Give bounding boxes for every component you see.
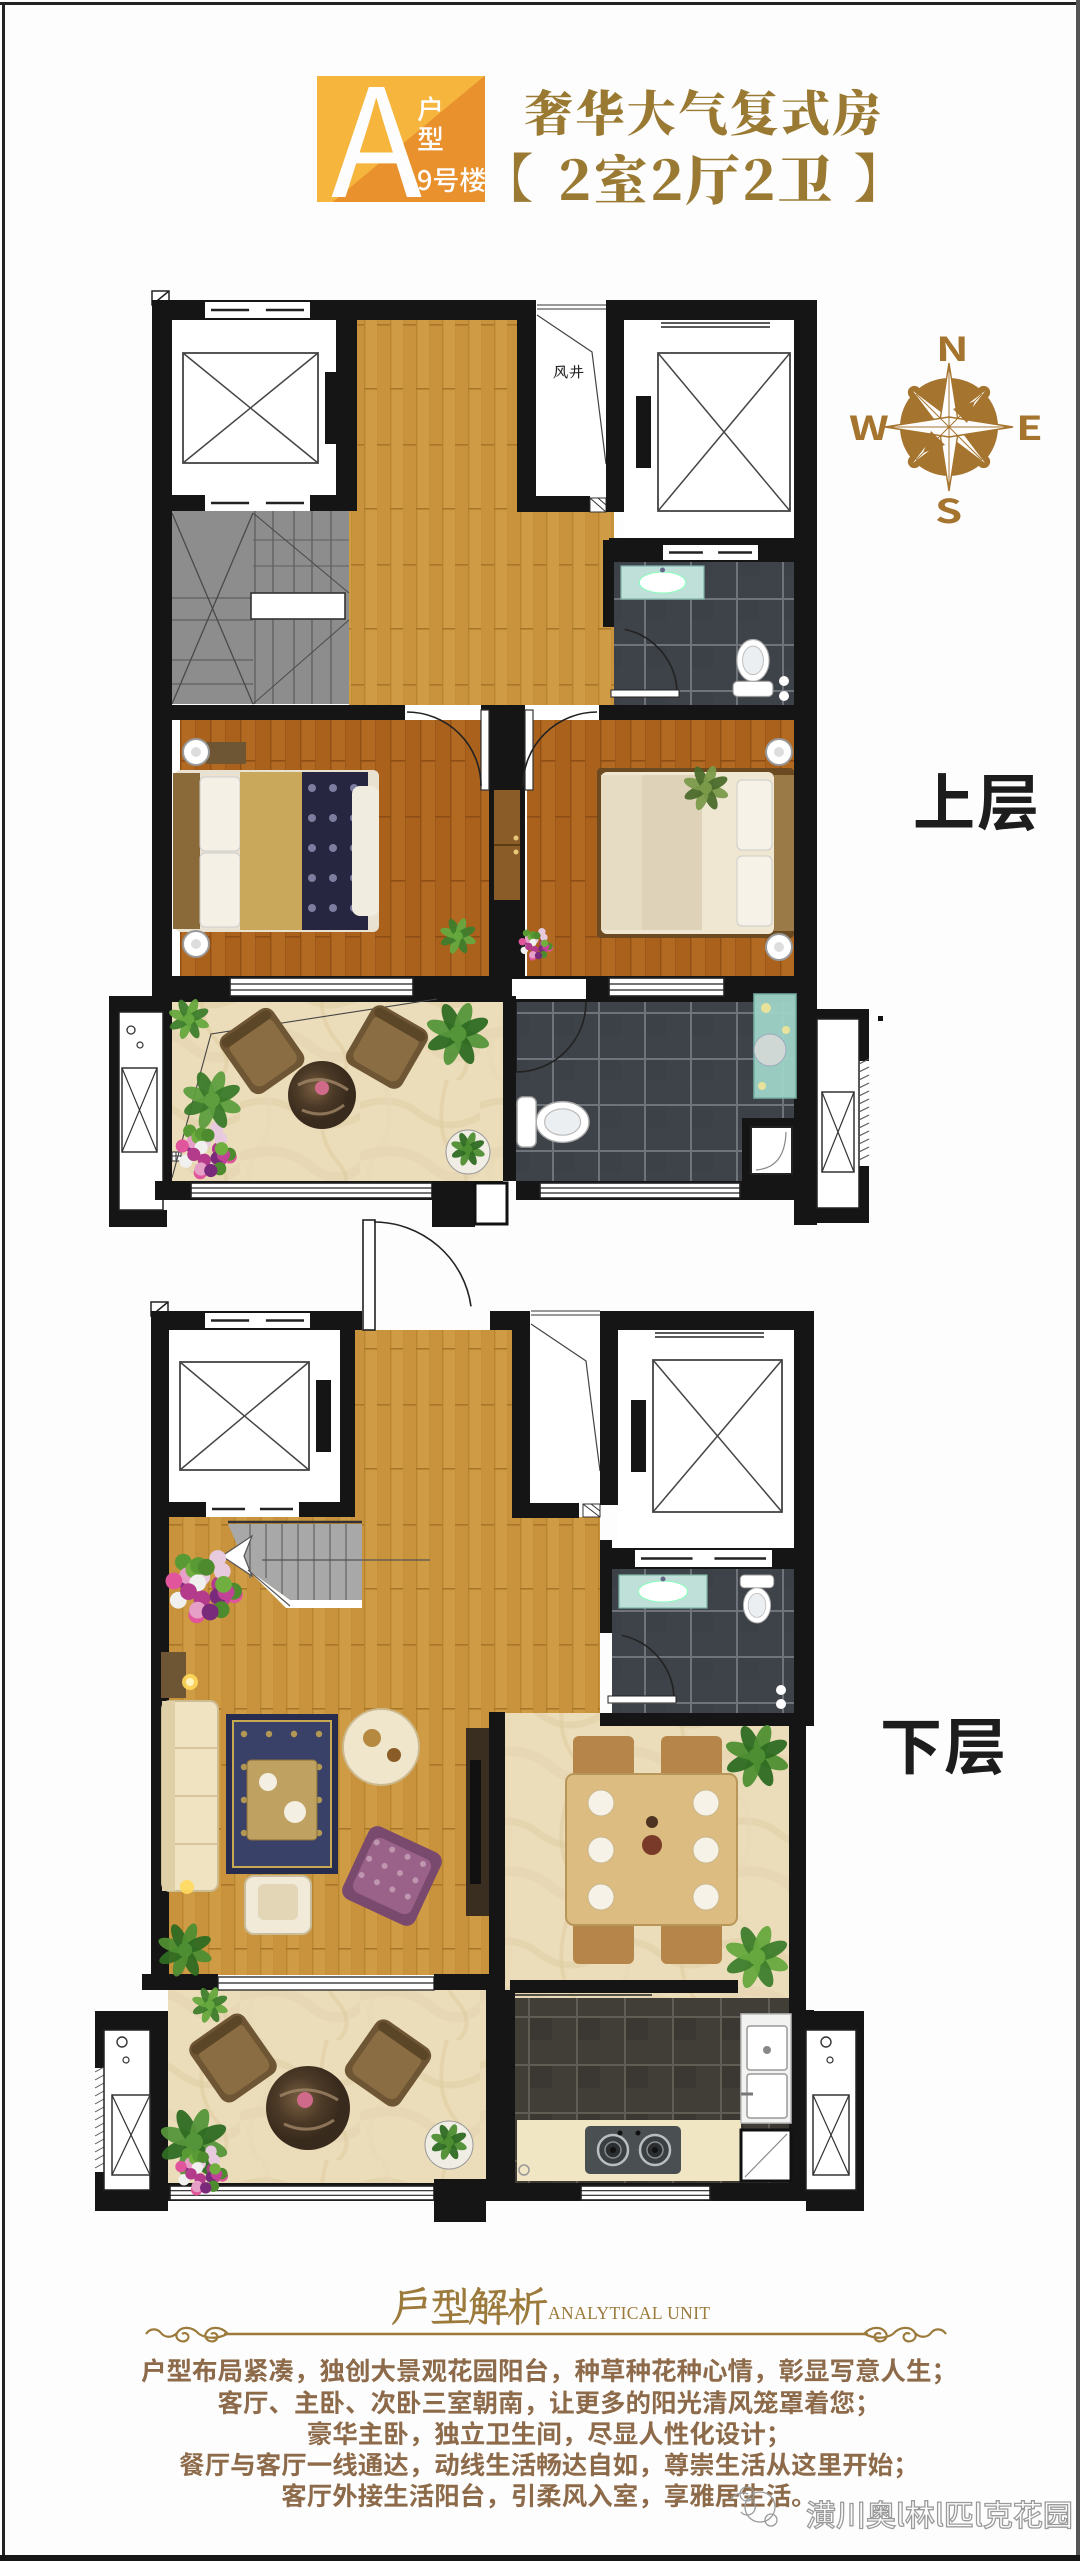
svg-text:ANALYTICAL UNIT: ANALYTICAL UNIT [548, 2303, 711, 2323]
